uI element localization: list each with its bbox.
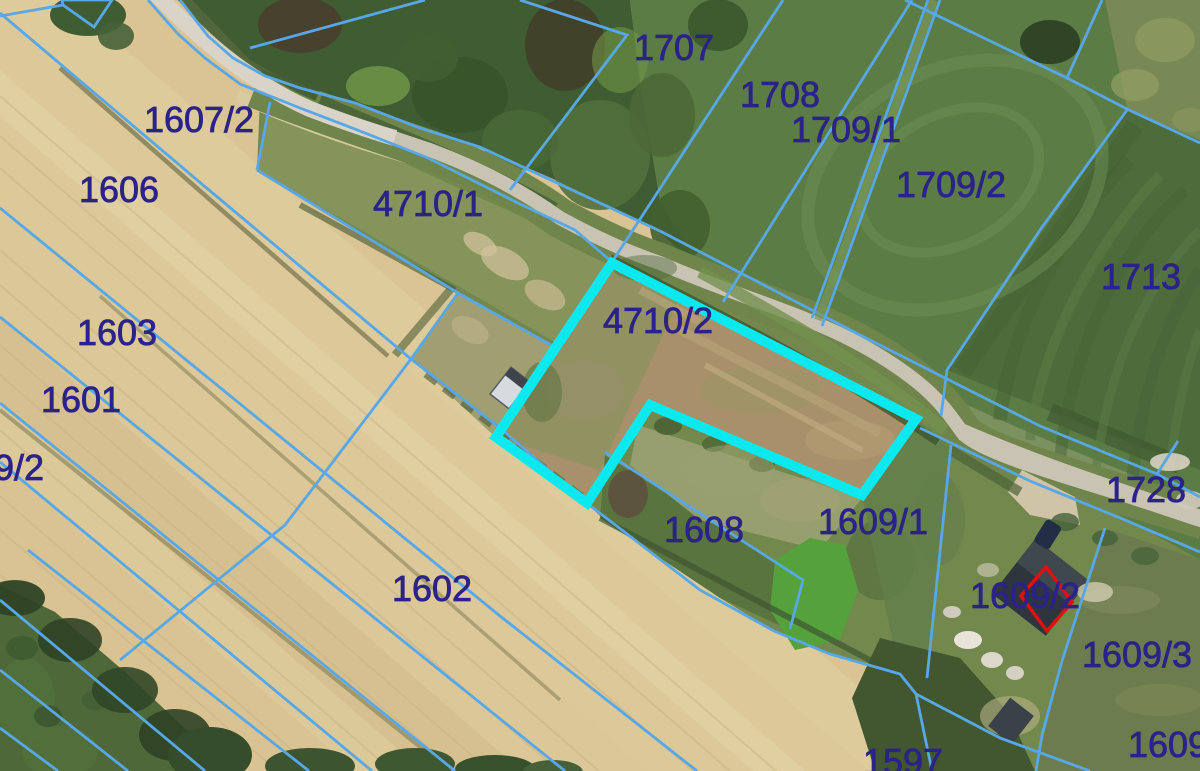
- svg-text:1709/1: 1709/1: [791, 109, 901, 150]
- svg-text:1707: 1707: [634, 27, 714, 68]
- svg-text:1601: 1601: [41, 379, 121, 420]
- svg-text:1609/2: 1609/2: [970, 575, 1080, 616]
- svg-text:1609: 1609: [1128, 724, 1200, 765]
- svg-text:1609/3: 1609/3: [1082, 634, 1192, 675]
- svg-text:1606: 1606: [79, 169, 159, 210]
- svg-text:1709/2: 1709/2: [896, 164, 1006, 205]
- svg-text:1728: 1728: [1106, 469, 1186, 510]
- svg-text:1607/2: 1607/2: [144, 99, 254, 140]
- svg-text:4710/1: 4710/1: [373, 183, 483, 224]
- svg-text:1609/1: 1609/1: [818, 501, 928, 542]
- svg-text:1608: 1608: [664, 509, 744, 550]
- svg-text:4710/2: 4710/2: [603, 300, 713, 341]
- svg-text:1603: 1603: [77, 312, 157, 353]
- svg-text:1597: 1597: [863, 741, 943, 771]
- svg-text:1713: 1713: [1101, 256, 1181, 297]
- svg-text:9/2: 9/2: [0, 447, 44, 488]
- svg-text:1602: 1602: [392, 568, 472, 609]
